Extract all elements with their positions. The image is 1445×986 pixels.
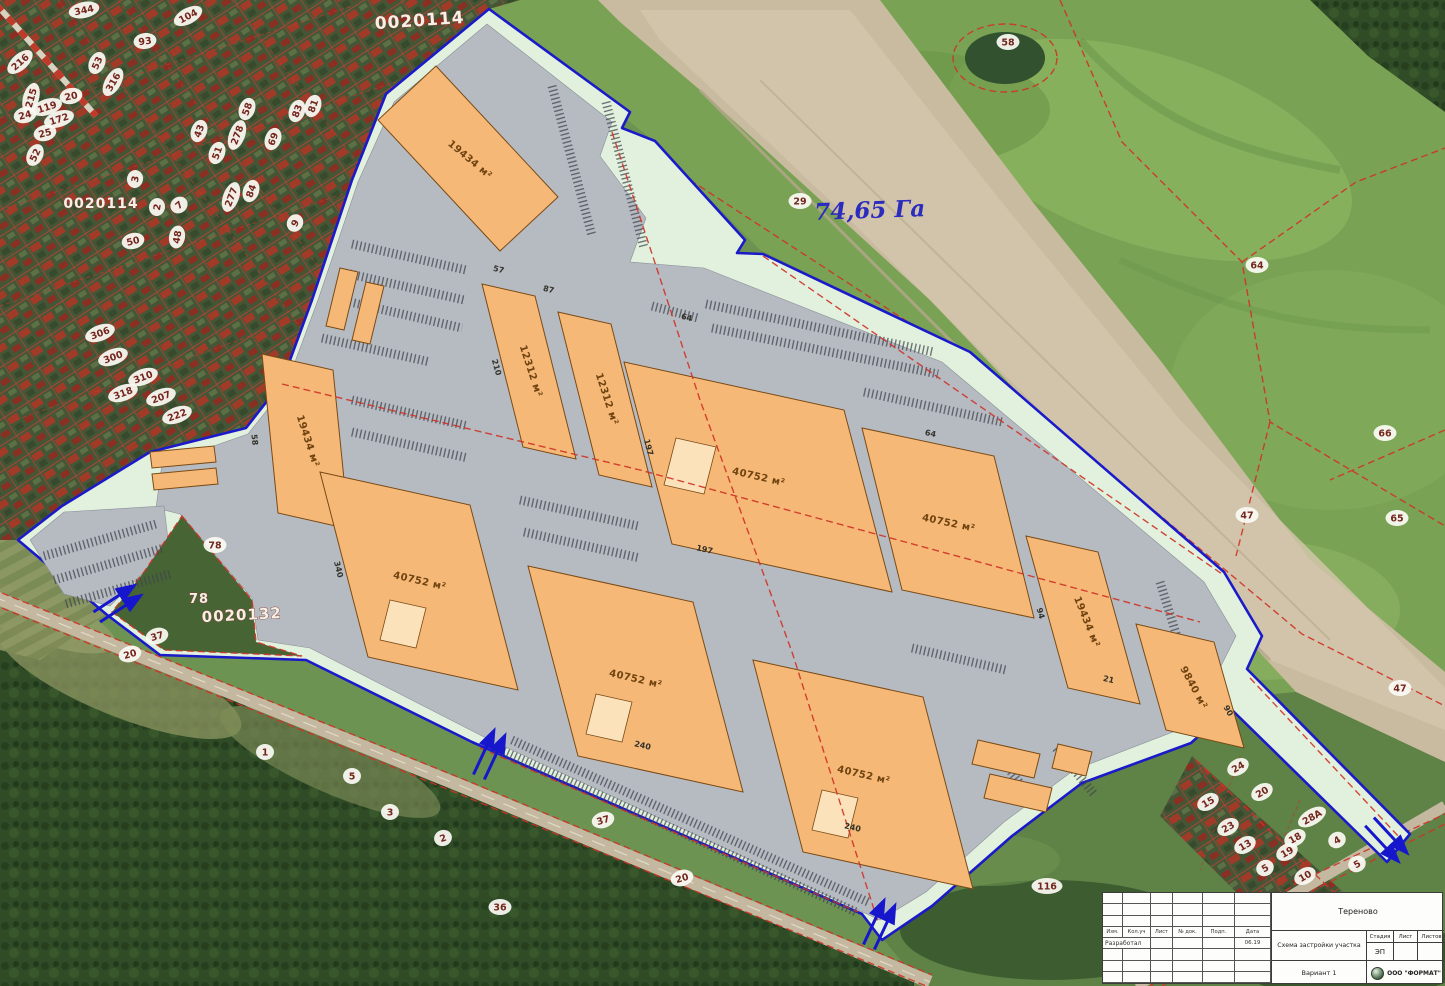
titleblock-cell <box>1123 904 1151 915</box>
titleblock-cell <box>1235 916 1271 927</box>
svg-text:5: 5 <box>349 771 356 782</box>
svg-text:116: 116 <box>1037 881 1057 892</box>
site-plan-map: 2163441049353316215201191722425524358278… <box>0 0 1445 986</box>
titleblock-cell: Лист <box>1151 927 1173 938</box>
titleblock-cell <box>1203 916 1235 927</box>
sheet-header: Лист <box>1394 931 1418 943</box>
parcel-number-label: 65 <box>1386 510 1409 526</box>
svg-text:58: 58 <box>1001 37 1015 48</box>
titleblock-cell <box>1151 893 1173 904</box>
titleblock-cell: Разработал <box>1103 938 1151 949</box>
titleblock-cell <box>1235 972 1271 983</box>
titleblock-cell <box>1103 949 1123 960</box>
titleblock-cell <box>1123 972 1151 983</box>
svg-text:65: 65 <box>1390 513 1403 524</box>
parcel-number-label: 47 <box>1389 680 1412 696</box>
svg-text:93: 93 <box>138 36 153 49</box>
parcel-number-label: 36 <box>489 899 512 915</box>
svg-text:47: 47 <box>1393 683 1406 694</box>
company-logo-icon <box>1371 967 1384 980</box>
titleblock-cell <box>1103 904 1123 915</box>
stage-table: Стадия Лист Листов ЭП <box>1367 931 1445 960</box>
titleblock-cell <box>1173 904 1203 915</box>
titleblock-cell <box>1235 961 1271 972</box>
titleblock-cell: Изм. <box>1103 927 1123 938</box>
stage-value: ЭП <box>1367 943 1394 961</box>
titleblock-cell <box>1203 893 1235 904</box>
titleblock-cell <box>1173 961 1203 972</box>
svg-text:3: 3 <box>387 807 394 818</box>
title-block: Изм.Кол.учЛист№ док.Подп.ДатаРазработал0… <box>1102 892 1443 984</box>
titleblock-cell <box>1173 972 1203 983</box>
parcel-number-label: 47 <box>1236 507 1259 523</box>
parcel-number-label: 58 <box>997 34 1020 50</box>
stage-header: Стадия <box>1367 931 1394 943</box>
titleblock-cell <box>1203 949 1235 960</box>
sheet-value <box>1394 943 1418 961</box>
map-canvas: 2163441049353316215201191722425524358278… <box>0 0 1445 986</box>
drawing-title: Схема застройки участка <box>1272 931 1367 960</box>
titleblock-cell <box>1123 916 1151 927</box>
project-name: Тереново <box>1272 893 1444 931</box>
titleblock-cell <box>1235 904 1271 915</box>
company-name: ООО "ФОРМАТ" <box>1387 970 1441 977</box>
titleblock-cell <box>1151 904 1173 915</box>
svg-text:78: 78 <box>208 540 222 551</box>
titleblock-cell <box>1235 893 1271 904</box>
titleblock-cell <box>1235 949 1271 960</box>
title-block-right: Тереново Схема застройки участка Стадия … <box>1271 893 1444 983</box>
titleblock-cell <box>1151 938 1173 949</box>
titleblock-cell <box>1123 949 1151 960</box>
titleblock-cell <box>1123 893 1151 904</box>
titleblock-cell <box>1173 938 1203 949</box>
cadastral-number: 0020114 <box>63 196 138 212</box>
title-block-revision-grid: Изм.Кол.учЛист№ док.Подп.ДатаРазработал0… <box>1103 893 1271 983</box>
titleblock-cell <box>1173 949 1203 960</box>
titleblock-cell <box>1203 904 1235 915</box>
titleblock-cell: № док. <box>1173 927 1203 938</box>
parcel-number-label: 37 <box>590 809 617 831</box>
sheets-header: Листов <box>1418 931 1445 943</box>
titleblock-cell <box>1103 916 1123 927</box>
parcel-number-label: 78 <box>204 537 227 553</box>
site-area-label: 74,65 Га <box>814 195 926 226</box>
titleblock-cell <box>1123 961 1151 972</box>
titleblock-cell <box>1103 972 1123 983</box>
titleblock-cell <box>1151 916 1173 927</box>
svg-text:64: 64 <box>1250 260 1264 271</box>
titleblock-cell <box>1103 893 1123 904</box>
titleblock-cell <box>1173 893 1203 904</box>
titleblock-cell <box>1103 961 1123 972</box>
svg-text:1: 1 <box>262 747 269 758</box>
titleblock-cell <box>1151 972 1173 983</box>
parcel-number-label: 3 <box>381 804 399 820</box>
parcel-number-label: 116 <box>1032 878 1063 894</box>
titleblock-cell: Дата <box>1235 927 1271 938</box>
parcel-number-label: 66 <box>1374 425 1397 441</box>
parcel-number-label: 1 <box>256 744 274 760</box>
svg-text:36: 36 <box>493 902 507 913</box>
titleblock-cell <box>1173 916 1203 927</box>
titleblock-cell: 06.19 <box>1235 938 1271 949</box>
cadastral-number: 78 <box>189 592 209 607</box>
titleblock-cell: Подп. <box>1203 927 1235 938</box>
svg-text:48: 48 <box>171 229 184 244</box>
variant-label: Вариант 1 <box>1272 961 1367 985</box>
svg-text:66: 66 <box>1378 428 1392 439</box>
company-cell: ООО "ФОРМАТ" <box>1367 961 1445 985</box>
titleblock-cell <box>1203 972 1235 983</box>
titleblock-cell <box>1203 961 1235 972</box>
svg-text:47: 47 <box>1240 510 1253 521</box>
parcel-number-label: 64 <box>1246 257 1269 273</box>
titleblock-cell: Кол.уч <box>1123 927 1151 938</box>
parcel-number-label: 29 <box>789 193 812 209</box>
titleblock-cell <box>1151 949 1173 960</box>
sheets-value <box>1418 943 1445 961</box>
parcel-number-label: 5 <box>343 768 361 784</box>
dimension-label: 58 <box>249 434 259 446</box>
titleblock-cell <box>1203 938 1235 949</box>
titleblock-cell <box>1151 961 1173 972</box>
svg-text:29: 29 <box>793 196 806 207</box>
